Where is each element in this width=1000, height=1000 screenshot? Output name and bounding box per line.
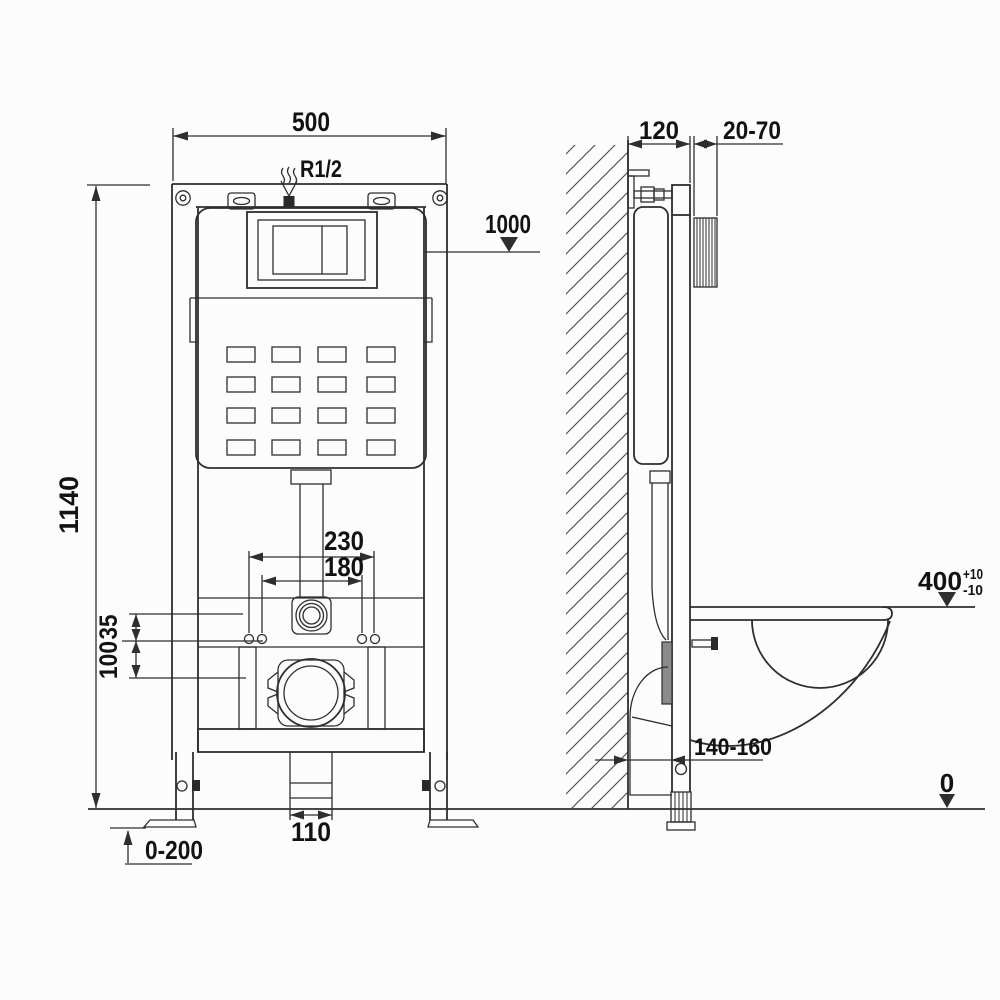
front-view	[144, 167, 478, 827]
dim-offset-100-label: 100	[95, 641, 123, 679]
lower-bracket	[198, 647, 424, 752]
dim-bowl-height-minus: -10	[963, 582, 983, 599]
foot-plate-icon	[428, 820, 478, 827]
mounting-frame	[172, 184, 447, 760]
drain-collar-icon	[268, 659, 354, 727]
dim-depth-label: 120	[639, 117, 679, 145]
side-view	[566, 140, 975, 830]
insulation-grid	[227, 347, 395, 455]
cistern-side	[634, 207, 670, 640]
wall-bracket-icon	[628, 170, 672, 208]
flush-buttons	[273, 226, 347, 274]
inlet-flange-icon	[292, 597, 331, 634]
cistern	[190, 208, 432, 468]
dim-drain-width-label: 110	[291, 817, 331, 847]
dim-offset-35-label: 35	[95, 614, 123, 639]
flush-plate	[247, 212, 377, 288]
installation-diagram: 500 R1/2 1140 1000 230 180 35 100	[0, 0, 1000, 1000]
dim-finish-label: 20-70	[723, 117, 781, 145]
dim-leg-adjust-label: 0-200	[145, 835, 203, 865]
water-inlet-icon	[281, 167, 297, 208]
dim-fixing-inner-label: 180	[324, 552, 364, 582]
dim-width-label: 500	[292, 107, 330, 137]
frame-side-profile	[672, 185, 690, 792]
side-dimensions: 120 20-70 400 +10 -10 140-160 0	[595, 117, 983, 808]
drain-elbow	[630, 642, 672, 795]
dim-floor-label: 0	[940, 768, 954, 798]
toilet-bowl-profile	[690, 607, 975, 746]
drain-pipe	[290, 752, 332, 809]
corner-screw-icon	[176, 191, 190, 205]
pipe-hole-icon	[676, 764, 687, 775]
dim-height-label: 1140	[54, 476, 84, 534]
wall-hatching	[566, 145, 628, 809]
dim-bowl-height-plus: +10	[963, 566, 983, 583]
technical-drawing-page: 500 R1/2 1140 1000 230 180 35 100	[0, 0, 1000, 1000]
dim-button-height-label: 1000	[485, 209, 531, 239]
fixing-holes	[245, 635, 380, 644]
flush-panel-side-icon	[694, 218, 717, 287]
dim-inlet-label: R1/2	[300, 156, 342, 183]
adjustable-legs	[144, 752, 478, 827]
dim-bowl-height-label: 400	[918, 566, 962, 596]
dim-drain-offset-label: 140-160	[694, 734, 772, 761]
fixing-bolt-icon	[692, 637, 718, 650]
foot-plate-icon	[144, 820, 196, 827]
corner-screw-icon	[433, 191, 447, 205]
side-foot-icon	[667, 792, 695, 830]
